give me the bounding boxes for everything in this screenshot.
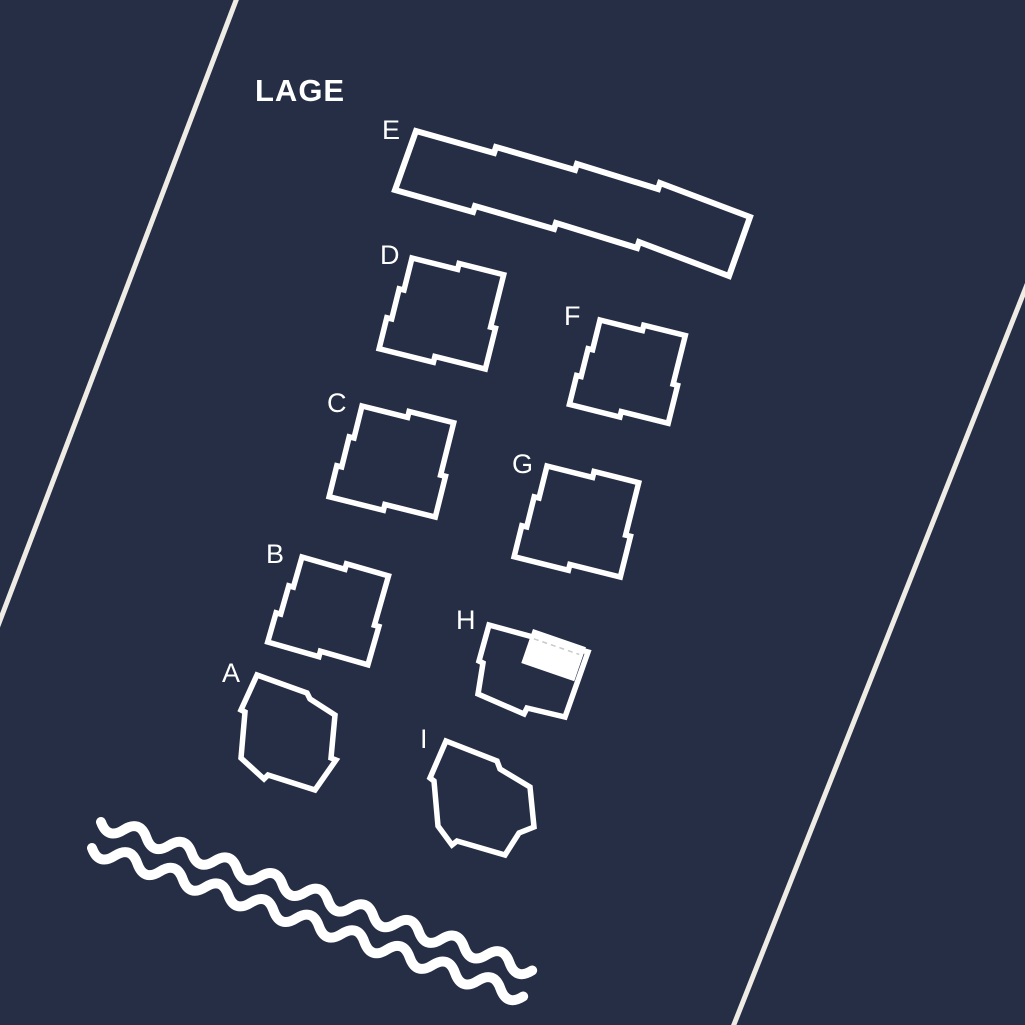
building-d-outline[interactable] [379,258,504,369]
building-c-label: C [327,388,347,418]
building-f-outline[interactable] [569,320,685,423]
water-wave-2 [90,841,526,1004]
building-g: G [512,449,639,577]
site-plan: LAGE E D F C G B H A I [0,0,1025,1025]
building-b-outline[interactable] [268,557,389,665]
building-e-outline[interactable] [395,131,750,276]
highlighted-unit-marker [521,629,586,681]
building-a-label: A [222,658,240,688]
street-line-right [731,272,1025,1025]
building-c: C [327,388,454,517]
building-g-label: G [512,449,533,479]
building-h-label: H [456,605,476,635]
building-e: E [382,115,750,276]
page-title: LAGE [255,73,345,108]
building-f-label: F [564,301,581,331]
building-d-label: D [380,240,400,270]
street-line-left [0,0,240,652]
building-i: I [420,724,534,855]
building-f: F [564,301,685,423]
building-e-label: E [382,115,400,145]
building-i-outline[interactable] [430,741,534,855]
building-c-outline[interactable] [329,406,454,517]
building-b-label: B [266,539,284,569]
building-a: A [222,658,336,790]
highlighted-unit-rect[interactable] [521,629,586,681]
water-wave-1 [99,815,535,978]
building-g-outline[interactable] [514,466,639,577]
site-plan-canvas: LAGE E D F C G B H A I [0,0,1025,1025]
building-i-label: I [420,724,428,754]
building-d: D [379,240,504,369]
building-b: B [266,539,389,665]
building-a-outline[interactable] [241,675,336,790]
